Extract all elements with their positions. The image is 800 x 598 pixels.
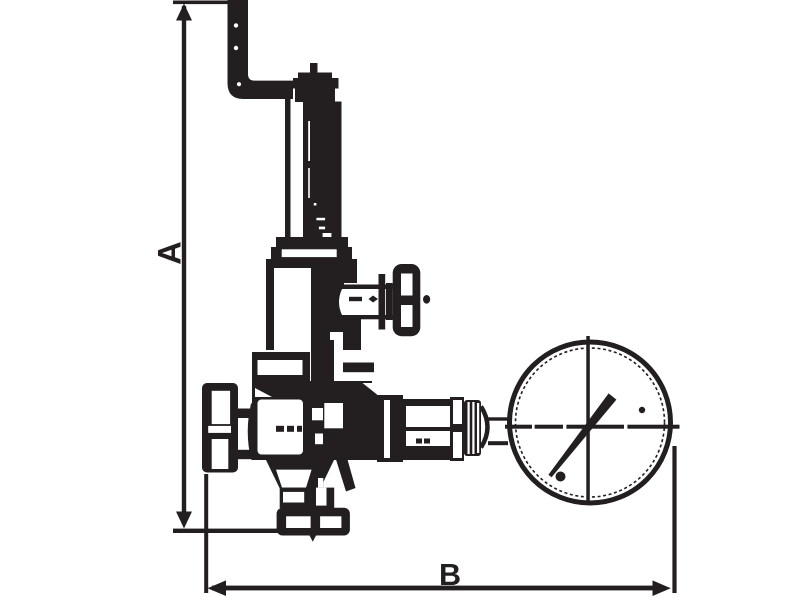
svg-text:A: A xyxy=(152,241,188,264)
svg-text:B: B xyxy=(439,558,461,592)
